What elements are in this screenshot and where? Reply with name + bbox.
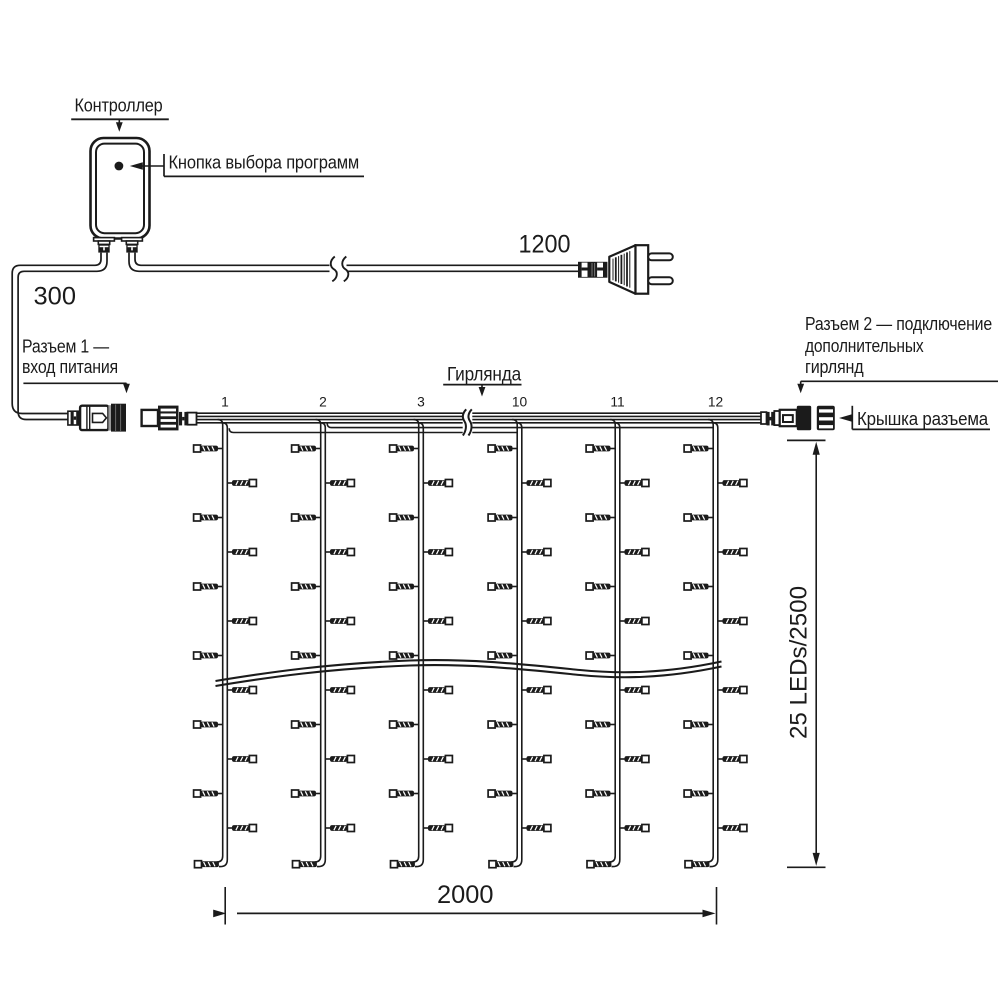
svg-text:25 LEDs/2500: 25 LEDs/2500 — [786, 586, 813, 739]
svg-text:Разъем 1 —: Разъем 1 — — [22, 336, 109, 356]
svg-text:12: 12 — [708, 394, 723, 409]
svg-text:Гирлянда: Гирлянда — [447, 364, 521, 386]
svg-text:2: 2 — [319, 394, 327, 409]
svg-text:11: 11 — [610, 394, 624, 409]
svg-text:вход питания: вход питания — [22, 357, 118, 377]
svg-text:дополнительных: дополнительных — [805, 336, 924, 356]
svg-text:Крышка разъема: Крышка разъема — [857, 409, 989, 429]
svg-text:гирлянд: гирлянд — [805, 357, 864, 377]
svg-text:300: 300 — [34, 283, 77, 311]
svg-text:1: 1 — [221, 394, 229, 409]
svg-text:1200: 1200 — [519, 230, 571, 258]
svg-text:Разъем 2 — подключение: Разъем 2 — подключение — [805, 314, 992, 334]
svg-text:10: 10 — [512, 394, 528, 409]
svg-text:Контроллер: Контроллер — [75, 96, 163, 116]
svg-text:2000: 2000 — [437, 881, 494, 909]
svg-text:Кнопка выбора программ: Кнопка выбора программ — [169, 152, 360, 172]
svg-text:3: 3 — [417, 394, 425, 409]
